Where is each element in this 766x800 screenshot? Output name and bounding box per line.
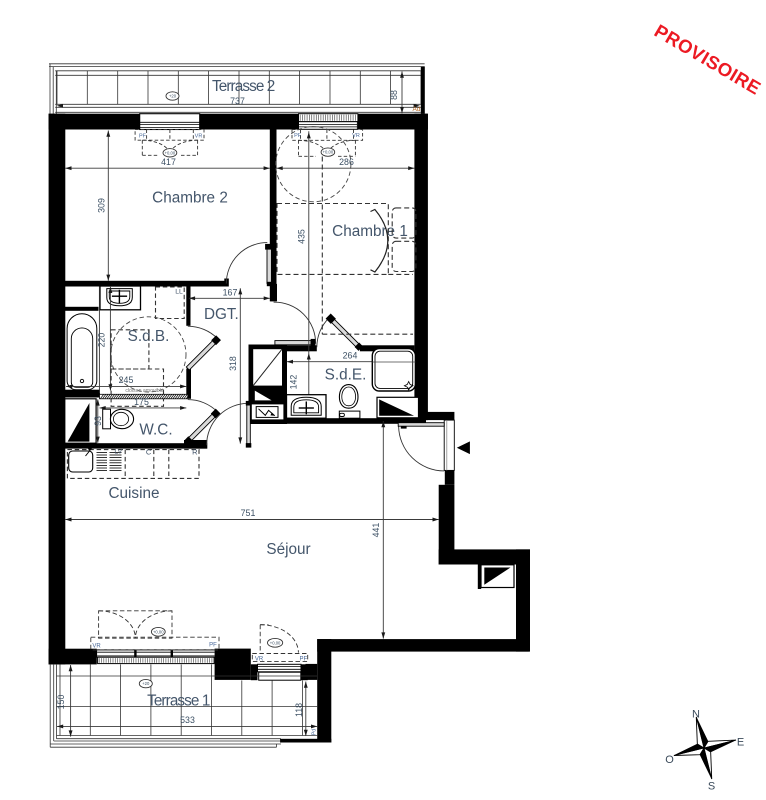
svg-text:118: 118 xyxy=(294,703,304,717)
svg-text:C: C xyxy=(146,447,152,456)
svg-text:93: 93 xyxy=(93,416,103,426)
svg-text:PF: PF xyxy=(294,133,302,139)
svg-text:+20: +20 xyxy=(169,94,177,99)
svg-text:Terrasse 1: Terrasse 1 xyxy=(147,693,210,710)
svg-text:LL: LL xyxy=(175,289,183,296)
svg-text:88: 88 xyxy=(389,90,399,100)
svg-text:175: 175 xyxy=(134,397,149,407)
svg-text:R: R xyxy=(192,448,198,457)
svg-text:Chambre 1: Chambre 1 xyxy=(332,223,408,240)
svg-text:Séjour: Séjour xyxy=(266,541,310,558)
svg-text:+0,00: +0,00 xyxy=(165,150,176,155)
svg-text:+0,00: +0,00 xyxy=(153,629,164,634)
svg-text:751: 751 xyxy=(241,508,256,518)
svg-text:+0,00: +0,00 xyxy=(270,640,281,645)
svg-text:cloison amovible: cloison amovible xyxy=(125,388,163,394)
svg-text:167: 167 xyxy=(223,287,238,297)
svg-text:DGT.: DGT. xyxy=(204,306,239,323)
svg-text:286: 286 xyxy=(339,157,354,167)
svg-text:Terrasse 2: Terrasse 2 xyxy=(212,78,275,95)
svg-text:Ad: Ad xyxy=(413,106,421,113)
svg-text:220: 220 xyxy=(97,333,107,348)
svg-text:318: 318 xyxy=(228,356,238,371)
svg-text:245: 245 xyxy=(119,375,134,385)
svg-text:Pd: Pd xyxy=(312,729,318,735)
svg-text:142: 142 xyxy=(288,375,298,390)
svg-text:737: 737 xyxy=(230,96,245,106)
svg-text:E: E xyxy=(737,737,744,749)
svg-text:VR: VR xyxy=(195,134,203,140)
svg-text:264: 264 xyxy=(343,350,358,360)
svg-text:VR: VR xyxy=(352,133,360,139)
svg-text:Chambre 2: Chambre 2 xyxy=(152,190,228,207)
svg-text:441: 441 xyxy=(371,523,381,538)
svg-text:VR: VR xyxy=(92,644,101,650)
svg-text:W.C.: W.C. xyxy=(139,422,172,439)
svg-text:150: 150 xyxy=(56,695,66,710)
svg-text:+20: +20 xyxy=(142,681,150,686)
svg-text:435: 435 xyxy=(297,229,307,244)
svg-text:S.d.E.: S.d.E. xyxy=(325,367,367,384)
svg-text:N: N xyxy=(692,709,700,721)
svg-text:PF: PF xyxy=(139,134,147,140)
svg-text:Cuisine: Cuisine xyxy=(108,485,159,502)
svg-text:533: 533 xyxy=(180,715,195,725)
svg-text:LV: LV xyxy=(114,449,122,456)
svg-text:O: O xyxy=(665,754,674,766)
svg-text:+0,00: +0,00 xyxy=(323,150,334,155)
svg-text:417: 417 xyxy=(161,157,176,167)
svg-text:S: S xyxy=(708,781,715,793)
svg-text:309: 309 xyxy=(96,198,106,213)
svg-text:PF: PF xyxy=(209,643,217,649)
